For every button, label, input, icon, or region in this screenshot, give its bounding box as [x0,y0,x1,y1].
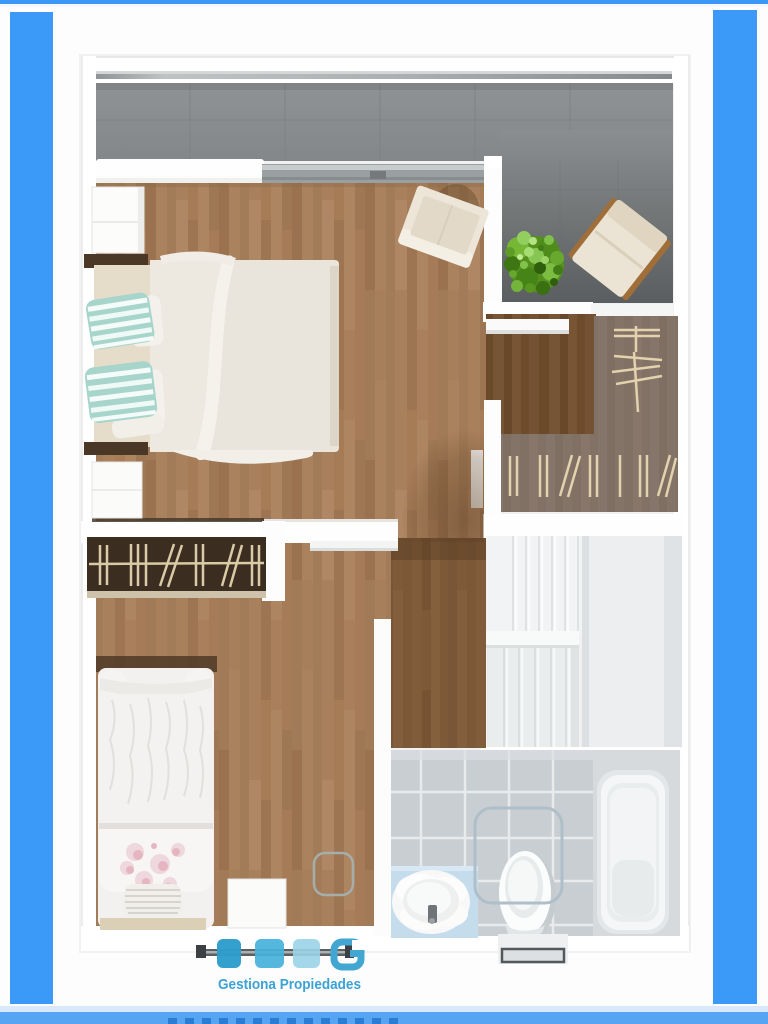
svg-text:Gestiona Propiedades: Gestiona Propiedades [218,976,361,993]
